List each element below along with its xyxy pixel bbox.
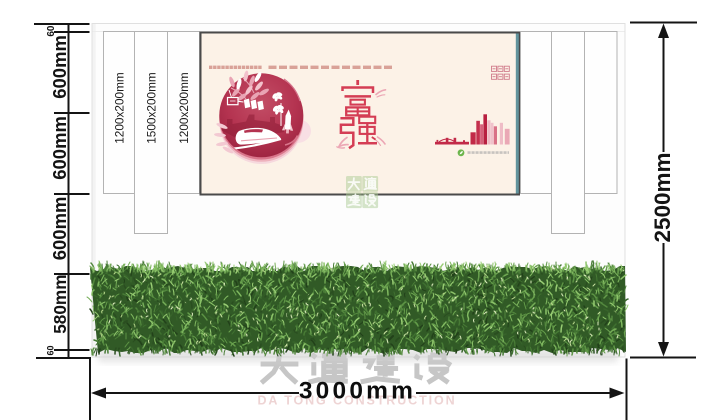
svg-text:1200x200mm: 1200x200mm [113,72,127,144]
svg-text:3000mm: 3000mm [299,378,416,405]
svg-text:600mm: 600mm [49,197,70,261]
svg-text:1500x200mm: 1500x200mm [145,72,159,144]
svg-text:60: 60 [46,25,57,37]
svg-text:2500mm: 2500mm [650,152,675,242]
svg-text:600mm: 600mm [49,35,70,99]
svg-text:580mm: 580mm [50,275,70,334]
svg-text:600mm: 600mm [49,116,70,180]
svg-text:1200x200mm: 1200x200mm [177,72,191,144]
svg-text:60: 60 [46,346,56,356]
